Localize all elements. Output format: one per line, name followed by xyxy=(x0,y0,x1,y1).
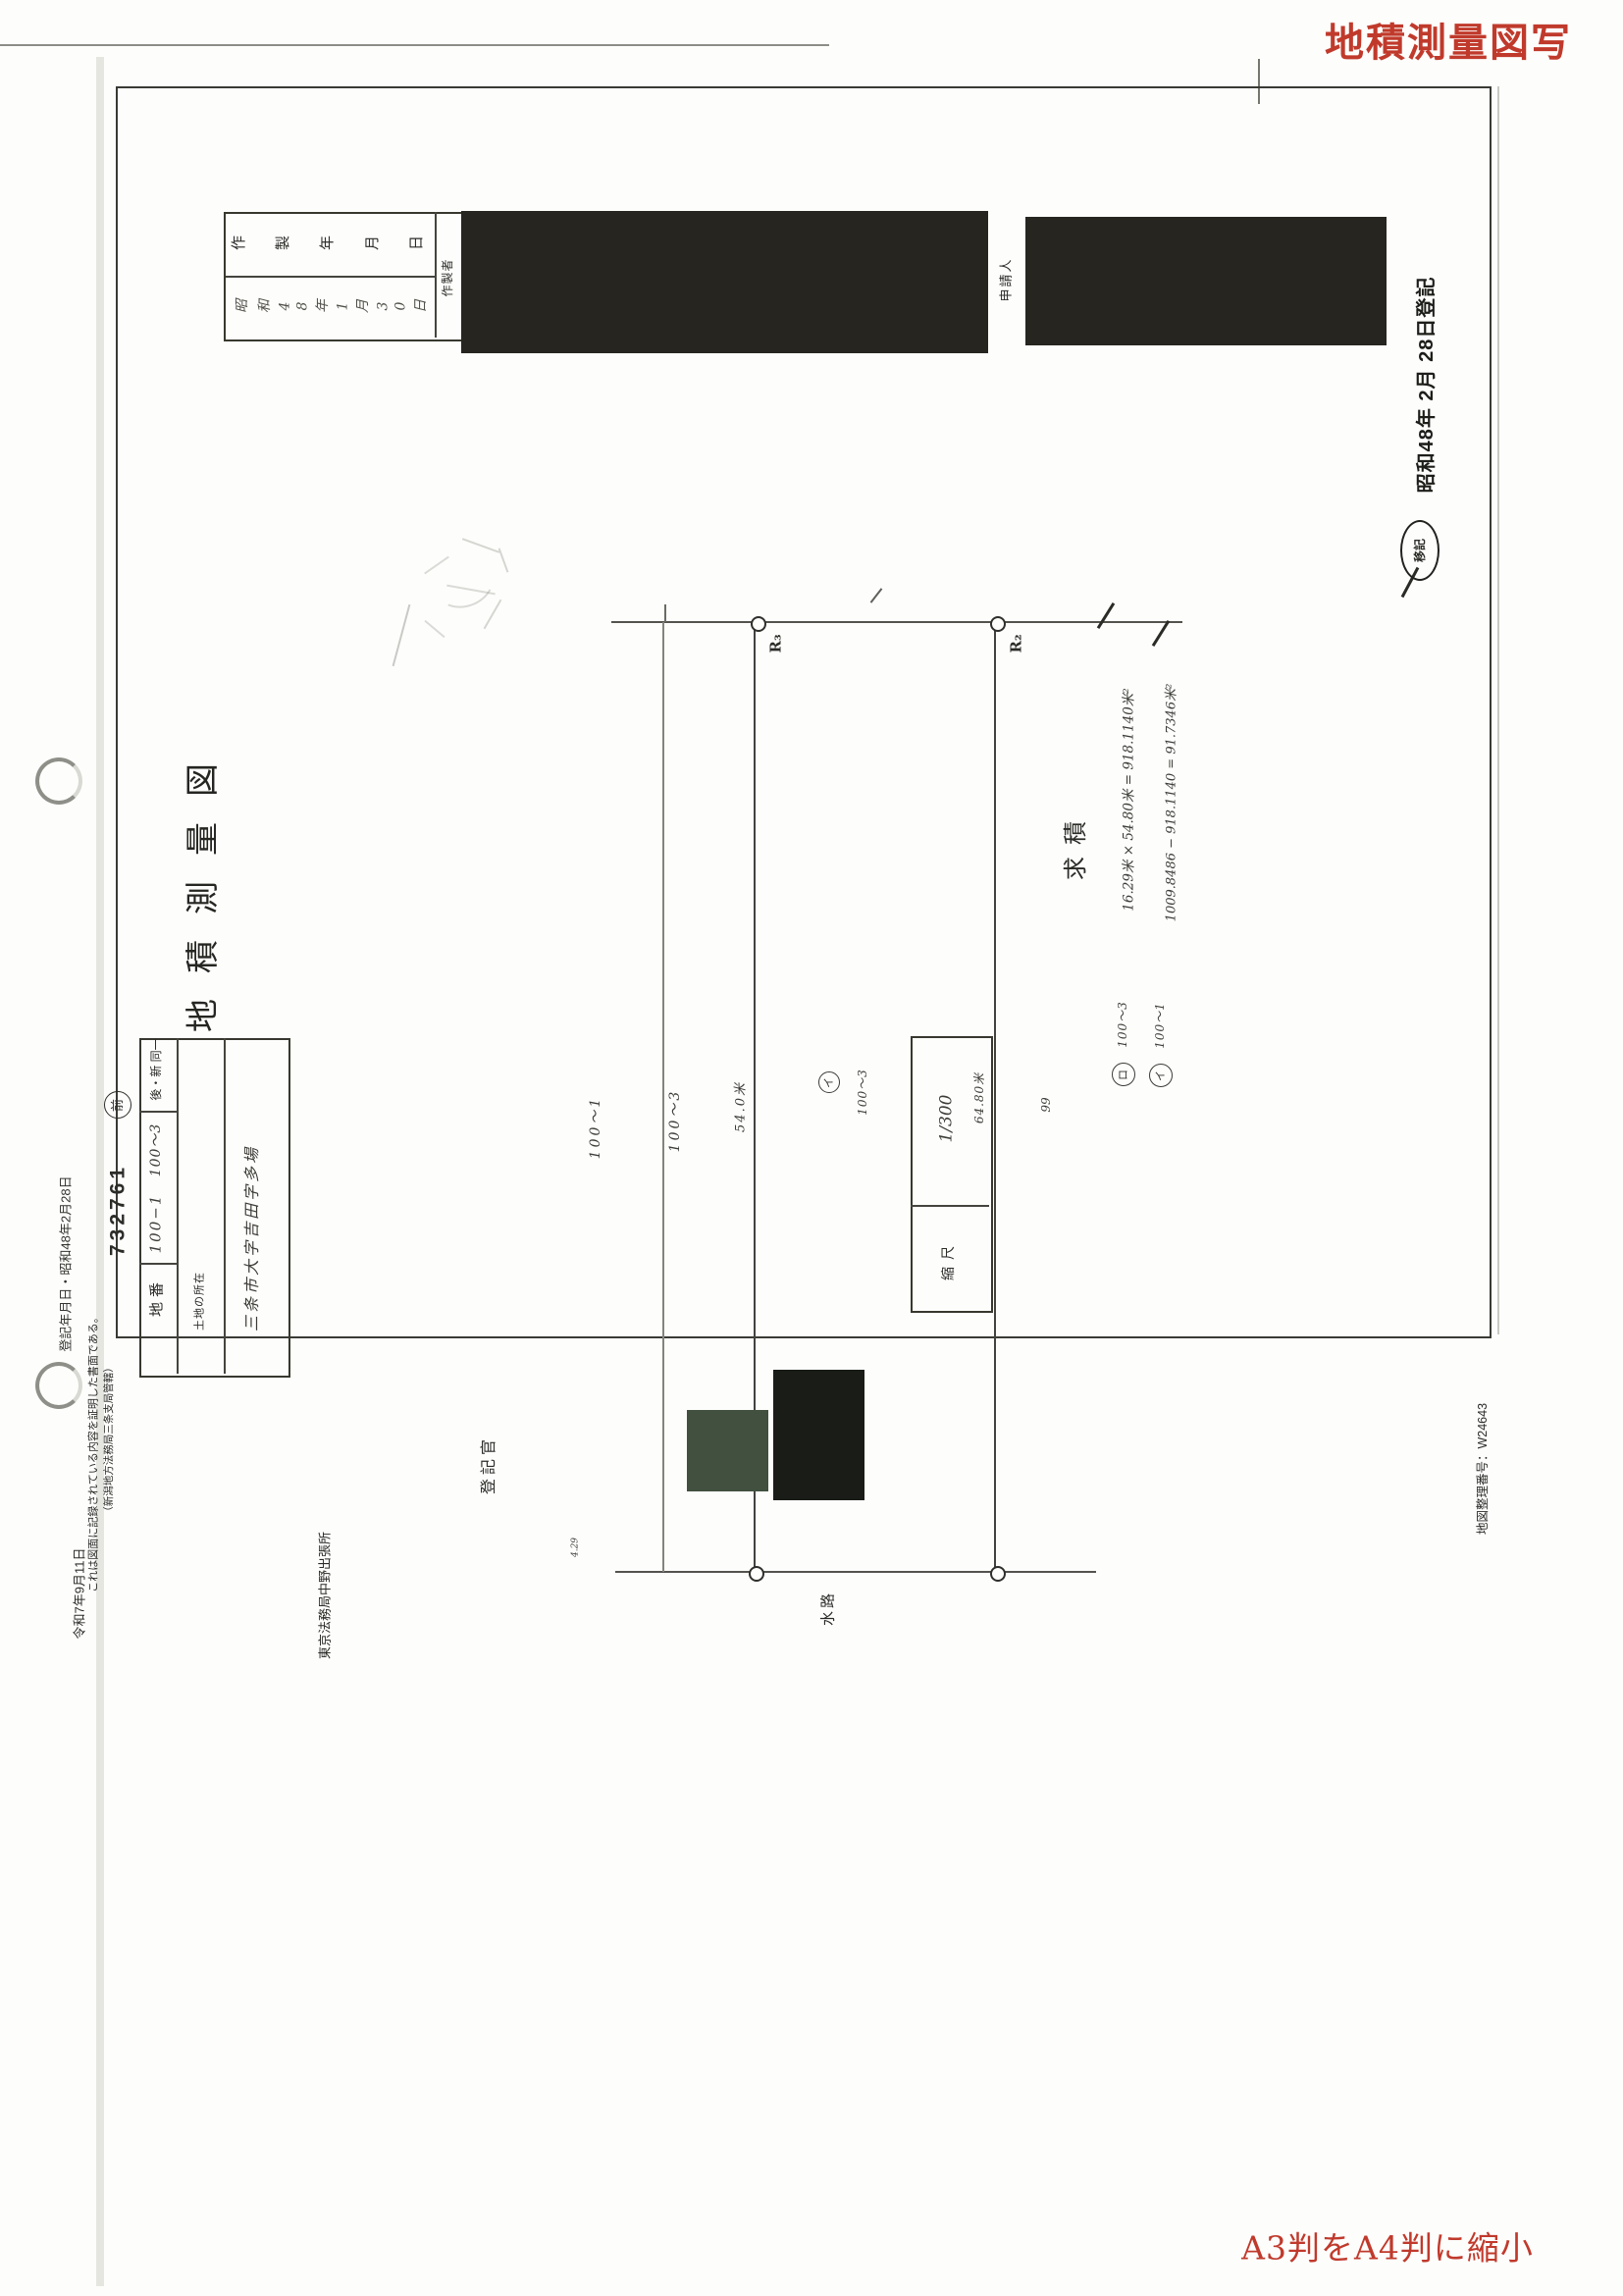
point-label-r3: R₃ xyxy=(769,634,784,652)
parcel-annotation: 100〜3 xyxy=(857,1069,868,1116)
title-block-divider xyxy=(139,1263,177,1265)
boundary-line-top xyxy=(611,621,1182,623)
applicant-label: 申請人 xyxy=(1000,257,1013,301)
area-calc-heading: 求積 xyxy=(1064,809,1087,880)
boundary-stub xyxy=(664,604,666,622)
dimension-annotation: 64.80米 xyxy=(973,1072,985,1123)
certification-office: 東京法務局中野出張所 xyxy=(319,1532,332,1659)
fold-line xyxy=(0,44,829,46)
author-label: 作製者 xyxy=(442,258,453,296)
certification-date: 令和7年9月11日 xyxy=(74,1548,86,1640)
registrar-name-redaction xyxy=(773,1370,864,1500)
punch-hole xyxy=(35,1362,82,1409)
reduction-note: A3判をA4判に縮小 xyxy=(1241,2232,1534,2265)
survey-point xyxy=(990,1566,1006,1582)
area-calc-line: 1009.8486 − 918.1140 = 91.7346米² xyxy=(1166,684,1178,922)
dimension-annotation: 4.29 xyxy=(572,1538,581,1557)
punch-hole xyxy=(35,757,82,805)
survey-point xyxy=(751,616,766,632)
scale-value: 1/300 xyxy=(939,1095,956,1143)
header-table-divider xyxy=(226,276,435,278)
legend-circle-i-text: イ xyxy=(1156,1070,1167,1081)
registrar-label: 登記官 xyxy=(482,1435,497,1494)
title-block-divider xyxy=(139,1111,177,1113)
title-block-divider xyxy=(224,1038,226,1374)
certification-jurisdiction: （新潟地方法務局三条支局管轄） xyxy=(104,1362,115,1517)
parcel-number-label: 地番 xyxy=(150,1278,165,1317)
parcel-number-2: 100〜3 xyxy=(149,1123,163,1177)
parcel-annotation: 100〜1 xyxy=(589,1096,602,1160)
parcel-annotation: 100〜3 xyxy=(668,1089,682,1153)
document-title: 地積測量図 xyxy=(186,738,220,1032)
margin-registration-date: 登記年月日・昭和48年2月28日 xyxy=(60,1175,73,1351)
circled-former-mark: 前 xyxy=(104,1091,131,1119)
title-block-divider xyxy=(177,1038,179,1374)
circled-i-text: イ xyxy=(824,1077,835,1088)
legend-entry: 100〜3 xyxy=(1117,1001,1128,1048)
parcel-number-1: 100−1 xyxy=(149,1194,164,1254)
boundary-line-bottom xyxy=(615,1571,1096,1573)
scale-box-divider xyxy=(911,1205,989,1207)
scan-edge-shadow-left xyxy=(96,57,104,2286)
survey-point xyxy=(990,616,1006,632)
registration-stamp-text: 昭和48年 2月 28日登記 xyxy=(1417,277,1437,494)
copy-stamp-title: 地積測量図写 xyxy=(1325,24,1572,63)
legend-circle-ro-text: ロ xyxy=(1119,1070,1129,1080)
location-value: 三条市大字吉田字多場 xyxy=(244,1145,260,1331)
circled-i-mark: イ xyxy=(818,1071,840,1093)
boundary-line-left xyxy=(662,622,664,1572)
registrar-seal-redaction xyxy=(687,1410,768,1491)
dimension-annotation: 54.0米 xyxy=(735,1081,748,1132)
scan-edge-shadow-right xyxy=(1497,86,1499,1334)
created-date-label: 作製年月日 xyxy=(232,226,424,259)
point-label-r2: R₂ xyxy=(1010,634,1024,652)
before-after-note: 後・新 同一 xyxy=(150,1038,162,1100)
header-table-divider xyxy=(435,212,437,338)
registration-stamp-seal-text: 移記 xyxy=(1414,539,1426,562)
location-label: 土地の所在 xyxy=(195,1272,206,1331)
boundary-line-right xyxy=(994,622,996,1572)
registration-stamp-seal: 移記 xyxy=(1400,520,1440,581)
file-number: 732761 xyxy=(108,1164,129,1256)
waterway-label: 水路 xyxy=(821,1591,836,1626)
survey-point xyxy=(749,1566,764,1582)
scale-label: 縮尺 xyxy=(941,1239,955,1280)
redaction-box-author xyxy=(461,211,988,353)
scanned-cadastral-survey-page: 地積測量図写 A3判をA4判に縮小 作製年月日 昭和48年1月30日 作製者 申… xyxy=(0,0,1623,2296)
circled-former-text: 前 xyxy=(111,1098,124,1111)
legend-circle-ro: ロ xyxy=(1112,1063,1135,1086)
dimension-annotation: 99 xyxy=(1040,1097,1052,1112)
created-date-value: 昭和48年1月30日 xyxy=(236,290,428,322)
legend-entry: 100〜1 xyxy=(1154,1002,1166,1049)
legend-circle-i: イ xyxy=(1149,1064,1173,1087)
certification-statement: これは図面に記録されている内容を証明した書面である。 xyxy=(89,1312,100,1592)
redaction-box-applicant xyxy=(1025,217,1387,345)
area-calc-line: 16.29米 × 54.80米 = 918.1140米² xyxy=(1123,688,1136,911)
map-admin-number: 地図整理番号：W24643 xyxy=(1477,1403,1490,1535)
